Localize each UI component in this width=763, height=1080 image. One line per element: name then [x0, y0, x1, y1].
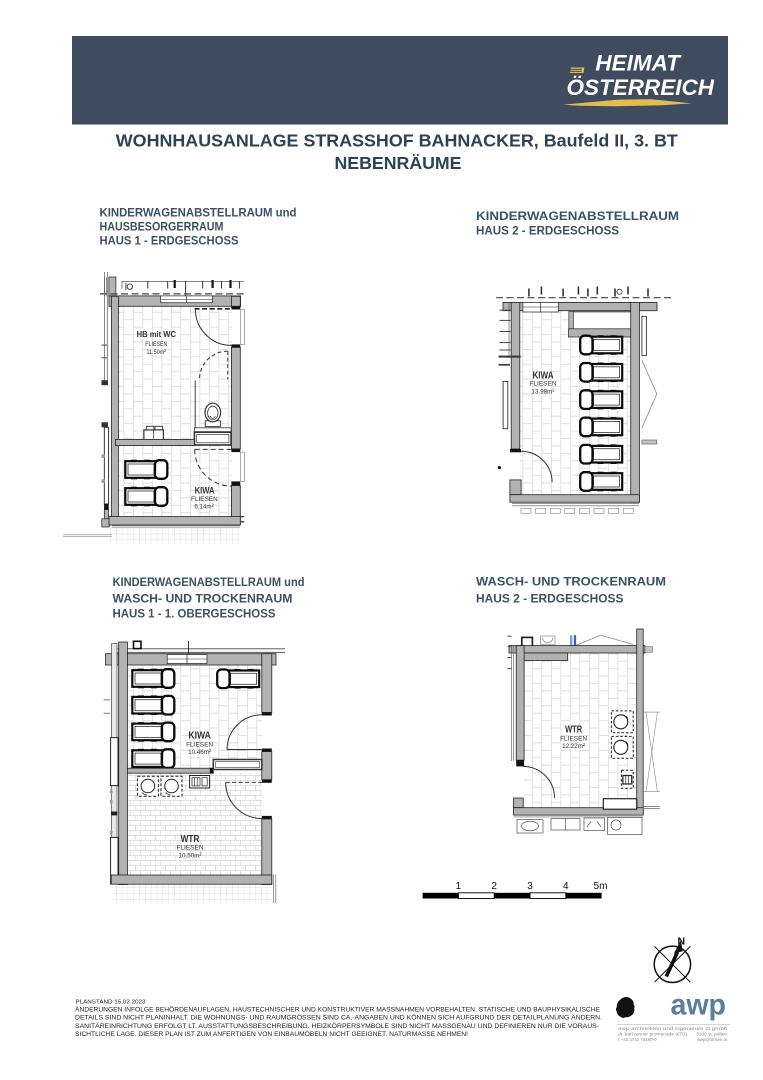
- svg-text:PLANSTAND 15.02.2023: PLANSTAND 15.02.2023: [76, 1000, 146, 1006]
- svg-text:10.50m²: 10.50m²: [179, 852, 203, 859]
- svg-text:DETAILS SIND NICHT PLANINHALT.: DETAILS SIND NICHT PLANINHALT. DIE WOHNU…: [75, 1014, 602, 1022]
- svg-text:13.98m²: 13.98m²: [532, 388, 556, 395]
- svg-text:HAUS 1 - ERDGESCHOSS: HAUS 1 - ERDGESCHOSS: [100, 234, 239, 248]
- svg-text:HB mit WC: HB mit WC: [137, 330, 177, 339]
- svg-text:awp@stmae.at: awp@stmae.at: [697, 1037, 728, 1042]
- svg-text:FLIESEN: FLIESEN: [186, 741, 213, 748]
- svg-text:HAUS 2 - ERDGESCHOSS: HAUS 2 - ERDGESCHOSS: [476, 224, 619, 238]
- svg-text:6.14m²: 6.14m²: [194, 503, 214, 510]
- svg-text:FLIESEN: FLIESEN: [191, 496, 218, 503]
- svg-text:WASCH- UND TROCKENRAUM: WASCH- UND TROCKENRAUM: [476, 575, 666, 589]
- svg-text:HAUS 2 - ERDGESCHOSS: HAUS 2 - ERDGESCHOSS: [476, 592, 624, 606]
- svg-text:KINDERWAGENABSTELLRAUM und: KINDERWAGENABSTELLRAUM und: [113, 575, 305, 589]
- svg-text:SICHTLICHE LAGE. DIESER PLAN I: SICHTLICHE LAGE. DIESER PLAN IST ZUM ANF…: [75, 1030, 468, 1038]
- svg-text:WOHNHAUSANLAGE STRASSHOF BAHNA: WOHNHAUSANLAGE STRASSHOF BAHNACKER, Bauf…: [116, 131, 678, 151]
- svg-text:5m: 5m: [594, 881, 608, 892]
- svg-text:ÖSTERREICH: ÖSTERREICH: [566, 75, 714, 100]
- svg-text:11.50m²: 11.50m²: [147, 349, 167, 356]
- svg-text:KINDERWAGENABSTELLRAUM und: KINDERWAGENABSTELLRAUM und: [100, 206, 297, 220]
- svg-text:12.22m²: 12.22m²: [562, 743, 586, 750]
- svg-text:WTR: WTR: [565, 725, 583, 736]
- svg-text:10.46m²: 10.46m²: [188, 749, 212, 756]
- svg-text:SANITÄREINRICHTUNG ERFOLGT LT.: SANITÄREINRICHTUNG ERFOLGT LT. AUSSTATTU…: [75, 1022, 599, 1030]
- svg-text:FLIESEN: FLIESEN: [529, 380, 557, 387]
- svg-text:KINDERWAGENABSTELLRAUM: KINDERWAGENABSTELLRAUM: [476, 209, 679, 223]
- svg-text:2: 2: [491, 881, 497, 892]
- svg-text:FLIESEN: FLIESEN: [145, 341, 167, 348]
- svg-text:WASCH- UND TROCKENRAUM: WASCH- UND TROCKENRAUM: [113, 591, 293, 605]
- svg-text:4: 4: [563, 881, 569, 892]
- svg-text:HAUS 1 - 1. OBERGESCHOSS: HAUS 1 - 1. OBERGESCHOSS: [113, 606, 276, 620]
- svg-text:KIWA: KIWA: [195, 486, 215, 496]
- svg-text:1: 1: [456, 881, 462, 892]
- svg-text:FLIESEN: FLIESEN: [560, 736, 587, 743]
- svg-text:ÄNDERUNGEN INFOLGE BEHÖRDENAUF: ÄNDERUNGEN INFOLGE BEHÖRDENAUFLAGEN, HAU…: [75, 1006, 600, 1014]
- svg-text:3100 st. pölten: 3100 st. pölten: [696, 1032, 727, 1037]
- svg-text:FLIESEN: FLIESEN: [177, 845, 204, 852]
- svg-text:WTR: WTR: [181, 834, 200, 845]
- svg-text:N: N: [678, 936, 686, 948]
- svg-text:dr. karl renner promenade 9/70: dr. karl renner promenade 9/701: [618, 1032, 688, 1037]
- svg-text:HAUSBESORGERRAUM: HAUSBESORGERRAUM: [100, 220, 224, 234]
- svg-text:awp architekten und ingenieure: awp architekten und ingenieure zt gmbh: [618, 1026, 728, 1031]
- svg-text:KIWA: KIWA: [188, 730, 210, 741]
- svg-text:t +43 2742 74190-0: t +43 2742 74190-0: [618, 1037, 657, 1042]
- svg-text:NEBENRÄUME: NEBENRÄUME: [335, 153, 462, 173]
- svg-text:HEIMAT: HEIMAT: [595, 51, 682, 76]
- svg-text:3: 3: [527, 881, 533, 892]
- svg-text:awp: awp: [671, 989, 727, 1022]
